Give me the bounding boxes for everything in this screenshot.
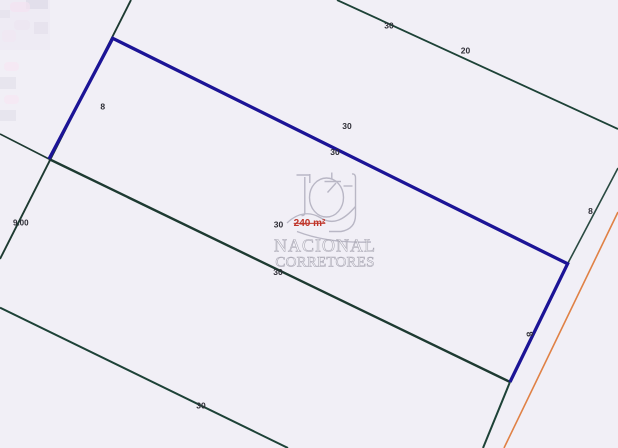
svg-text:30: 30	[342, 121, 352, 131]
svg-text:30: 30	[330, 147, 340, 157]
svg-text:NACIONAL: NACIONAL	[274, 236, 376, 256]
svg-text:CORRETORES: CORRETORES	[275, 255, 374, 271]
svg-text:8: 8	[588, 206, 593, 216]
svg-text:30: 30	[273, 267, 283, 277]
svg-text:30: 30	[274, 219, 284, 229]
svg-text:30: 30	[196, 401, 206, 411]
svg-text:20: 20	[461, 46, 471, 56]
svg-text:30: 30	[384, 21, 394, 31]
svg-text:9.00: 9.00	[13, 218, 29, 227]
svg-text:240 m²: 240 m²	[294, 218, 326, 229]
svg-text:8: 8	[100, 102, 105, 112]
